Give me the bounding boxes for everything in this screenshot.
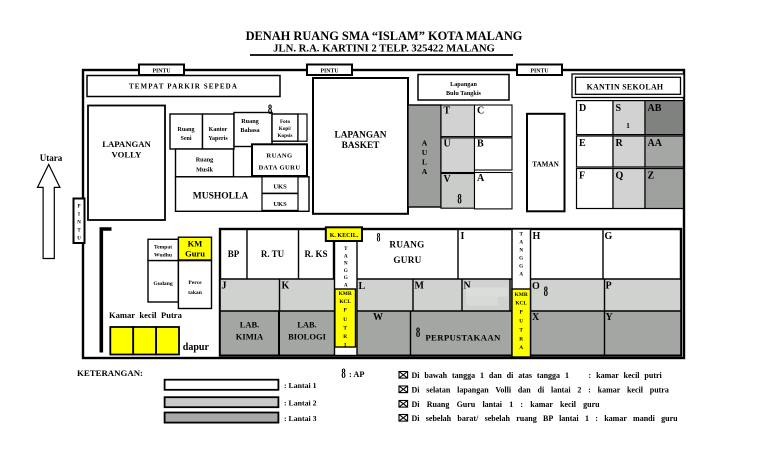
svg-text:: AP: : AP [349,370,364,379]
svg-text:T: T [519,232,523,238]
svg-text:G: G [519,256,523,262]
svg-text:A: A [519,240,523,246]
svg-text:PINTU: PINTU [530,69,549,75]
svg-text:N: N [77,221,81,226]
svg-text:F: F [579,171,585,182]
svg-text:DENAH RUANG SMA “ISLAM” KOTA M: DENAH RUANG SMA “ISLAM” KOTA MALANG [246,29,523,43]
svg-text:: Lantai 2: : Lantai 2 [284,399,317,408]
svg-text:8: 8 [544,283,548,300]
svg-text:J: J [222,281,227,292]
svg-text:KMR: KMR [339,291,352,297]
svg-text:PINTU: PINTU [152,69,171,75]
svg-text:Yaperis: Yaperis [208,136,228,142]
svg-text:Ruang: Ruang [196,157,214,164]
svg-text:U: U [343,317,347,323]
svg-text:U: U [77,237,81,242]
svg-text:N: N [344,261,348,267]
svg-text:: Lantai 3: : Lantai 3 [284,414,317,423]
svg-text:KETERANGAN:: KETERANGAN: [77,368,143,378]
svg-text:R. TU: R. TU [261,249,285,259]
svg-text:LAB.: LAB. [240,320,260,330]
svg-text:A: A [344,283,348,289]
svg-text:Musik: Musik [196,167,213,174]
svg-text:R: R [343,334,347,340]
svg-text:U: U [519,319,523,325]
svg-text:Di Ruang Guru lantai 1 :: Di Ruang Guru lantai 1 : kamar kecil gur… [412,400,601,409]
svg-text:LAPANGAN: LAPANGAN [102,139,151,149]
svg-text:Kamar kecil Putra: Kamar kecil Putra [109,310,183,320]
svg-text:N: N [519,248,523,254]
svg-text:KMR: KMR [515,292,528,298]
svg-text:Kopi/: Kopi/ [279,126,292,132]
svg-text:T: T [444,106,451,117]
svg-text:LAPANGAN: LAPANGAN [335,131,387,141]
svg-text:JLN. R.A. KARTINI 2 TELP. 3254: JLN. R.A. KARTINI 2 TELP. 325422 MALANG [273,43,495,55]
svg-text:AA: AA [648,138,663,149]
svg-text:VOLLY: VOLLY [112,150,143,160]
svg-text:Lapangan: Lapangan [450,81,477,88]
svg-text:Di selatan lapangan Volli da: Di selatan lapangan Volli dan di lantai … [412,386,669,395]
svg-text:takan: takan [188,290,203,296]
svg-text:1: 1 [626,121,630,130]
svg-text:P: P [77,205,80,210]
svg-text:Q: Q [616,171,624,182]
svg-text:8: 8 [377,232,381,245]
svg-text:UKS: UKS [273,184,287,191]
svg-text:Y: Y [606,312,614,323]
svg-text:C: C [477,106,484,117]
svg-text:Gudang: Gudang [153,281,172,287]
svg-text:Foto: Foto [280,119,290,125]
svg-text:G: G [605,231,613,242]
svg-text:A: A [344,254,348,260]
svg-text:X: X [532,312,540,323]
svg-text:I: I [344,343,346,349]
svg-text:L: L [359,281,366,292]
svg-text:Tempat: Tempat [154,245,172,251]
svg-text:T: T [343,326,347,332]
svg-text:Ruang: Ruang [177,127,194,133]
svg-text:R: R [519,337,523,343]
svg-text:Kopsis: Kopsis [278,133,293,139]
svg-text:O: O [532,281,540,292]
svg-text:M: M [415,281,425,292]
svg-text:BP: BP [228,249,240,259]
svg-text:Wudhu: Wudhu [154,253,172,259]
svg-text:V: V [444,174,452,185]
svg-text:B: B [477,139,484,150]
svg-text:KANTIN SEKOLAH: KANTIN SEKOLAH [587,83,664,92]
svg-text:K. KECIL.: K. KECIL. [330,233,359,239]
svg-text:8: 8 [457,190,461,207]
svg-text:A: A [477,173,485,184]
svg-text:KCL: KCL [339,299,351,305]
svg-text:KCL: KCL [515,301,527,307]
svg-text:A: A [519,345,523,351]
svg-text:S: S [616,103,622,114]
svg-text:Z: Z [648,171,655,182]
svg-text:Perce: Perce [188,280,202,286]
svg-text:W: W [373,312,383,323]
svg-text:U: U [444,139,451,150]
svg-text:T: T [519,328,523,334]
svg-text:RUANG: RUANG [389,240,424,250]
svg-text:Guru: Guru [185,249,205,259]
svg-text:K: K [282,281,290,292]
svg-text:G: G [344,275,348,281]
svg-text:A: A [422,139,428,148]
svg-text:U: U [422,148,428,157]
svg-text:Bahasa: Bahasa [240,127,259,134]
svg-text:BASKET: BASKET [342,141,381,151]
svg-text:Ruang: Ruang [241,118,259,125]
svg-text:Utara: Utara [40,153,63,163]
svg-text:8: 8 [268,101,272,118]
svg-text:P: P [606,281,612,292]
svg-text:KM: KM [188,239,203,249]
svg-text:RUANG: RUANG [266,153,292,160]
svg-text:I: I [461,231,465,242]
svg-text:Di sebelah barat/ sebelah rua: Di sebelah barat/ sebelah ruang BP lanta… [412,414,679,423]
svg-text:GURU: GURU [393,255,421,265]
svg-text:dapur: dapur [183,342,210,353]
svg-text:LAB.: LAB. [297,320,317,330]
svg-text:A: A [519,272,523,278]
svg-text:UKS: UKS [273,201,287,208]
svg-text:I: I [78,213,80,218]
svg-text:8: 8 [341,365,345,382]
svg-text:G: G [519,264,523,270]
svg-text:Seni: Seni [180,136,191,142]
svg-text:Kantor: Kantor [209,127,228,133]
svg-text:AB: AB [648,103,662,114]
svg-text:: Lantai 1: : Lantai 1 [284,381,317,390]
svg-text:PERPUSTAKAAN: PERPUSTAKAAN [425,333,501,343]
svg-text:KIMIA: KIMIA [236,332,264,342]
svg-text:Di bawah tangga 1 dan di ata: Di bawah tangga 1 dan di atas tangga 1 :… [412,371,663,380]
svg-text:R. KS: R. KS [304,249,327,259]
svg-text:BIOLOGI: BIOLOGI [288,332,326,342]
svg-text:E: E [579,138,586,149]
svg-text:Bulu Tangkis: Bulu Tangkis [446,90,482,97]
svg-text:PINTU: PINTU [320,69,339,75]
svg-text:TEMPAT PARKIR SEPEDA: TEMPAT PARKIR SEPEDA [129,83,238,91]
svg-text:R: R [616,138,624,149]
svg-text:DATA GURU: DATA GURU [258,165,300,172]
svg-text:MUSHOLLA: MUSHOLLA [193,192,249,202]
svg-text:D: D [579,103,586,114]
svg-text:A: A [422,167,428,176]
svg-text:H: H [533,231,541,242]
svg-text:L: L [422,158,427,167]
svg-text:T: T [344,246,348,252]
svg-text:8: 8 [416,324,420,341]
svg-text:G: G [344,268,348,274]
svg-text:TAMAN: TAMAN [532,161,559,169]
